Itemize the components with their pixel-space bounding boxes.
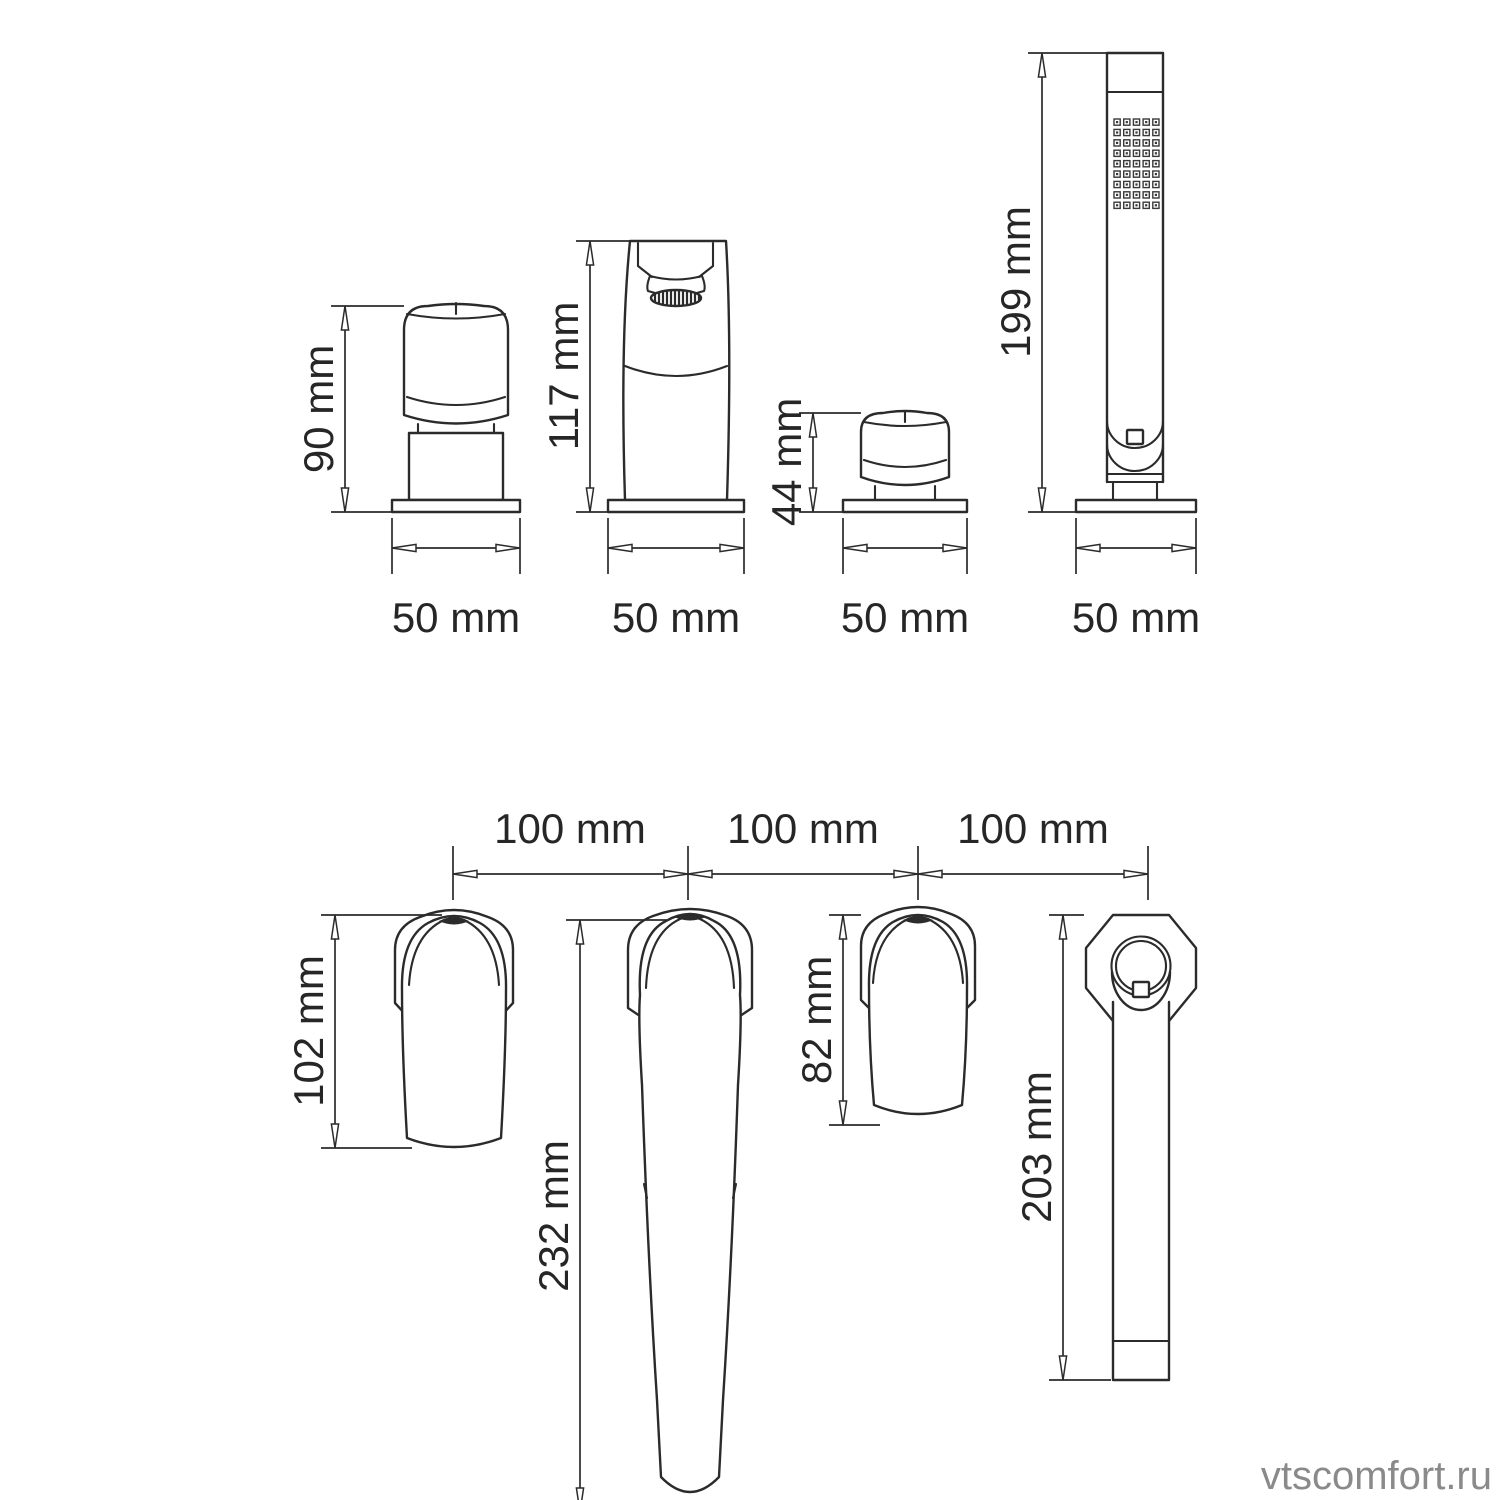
height-dim-left-handle: 90 mm	[295, 306, 404, 512]
nozzle-dot-core	[1126, 131, 1128, 133]
length-label: 232 mm	[530, 1140, 577, 1292]
nozzle-dot-core	[1145, 131, 1147, 133]
extension-lines	[392, 518, 520, 574]
nozzle-dot-core	[1126, 194, 1128, 196]
width-dim-left-handle: 50 mm	[392, 518, 520, 641]
nozzle-dot-core	[1116, 194, 1118, 196]
height-dim-hand-shower: 199 mm	[992, 53, 1107, 512]
nozzle-dot-core	[1155, 163, 1157, 165]
faucet-dimension-diagram: 90 mm 117 mm 44 mm 199 mm 50 mm 50 mm	[0, 0, 1500, 1500]
top-view-left-handle	[395, 910, 513, 1147]
nozzle-dot-core	[1135, 121, 1137, 123]
height-label: 44 mm	[763, 398, 810, 526]
height-label: 117 mm	[540, 302, 587, 451]
front-view-right-handle	[843, 411, 967, 512]
nozzle-dot-core	[1145, 152, 1147, 154]
extension-lines	[608, 518, 744, 574]
spout-outline	[639, 914, 740, 1492]
handle-lever-outline	[402, 916, 506, 1147]
nozzle-dot-core	[1116, 183, 1118, 185]
extension-lines	[1028, 53, 1107, 512]
nozzle-dot-core	[1116, 152, 1118, 154]
length-label: 102 mm	[285, 955, 332, 1107]
nozzle-dot-core	[1116, 121, 1118, 123]
nozzle-dot-core	[1145, 194, 1147, 196]
width-dim-hand-shower: 50 mm	[1072, 518, 1200, 641]
nozzle-dot-core	[1155, 142, 1157, 144]
nozzle-dot-core	[1126, 152, 1128, 154]
length-label: 203 mm	[1013, 1071, 1060, 1223]
top-view-spout	[628, 909, 752, 1492]
nozzle-dot-core	[1126, 142, 1128, 144]
nozzle-dot-core	[1145, 121, 1147, 123]
nozzle-dot-core	[1116, 142, 1118, 144]
spacing-dim-chain: 100 mm 100 mm 100 mm	[453, 805, 1148, 900]
spacing-label-2: 100 mm	[727, 805, 879, 852]
watermark: vtscomfort.ru	[1261, 1454, 1492, 1498]
shower-body-outline	[1107, 53, 1163, 482]
front-view-hand-shower	[1076, 53, 1196, 512]
handle-lever-outline	[869, 915, 967, 1114]
shower-button	[1127, 430, 1143, 444]
width-label: 50 mm	[612, 594, 740, 641]
nozzle-dot-core	[1135, 173, 1137, 175]
nozzle-dot-core	[1155, 204, 1157, 206]
height-label: 199 mm	[992, 206, 1039, 358]
nozzle-dot-core	[1155, 183, 1157, 185]
nozzle-dot-core	[1135, 183, 1137, 185]
height-label: 90 mm	[295, 345, 342, 473]
nozzle-dot-core	[1145, 163, 1147, 165]
nozzle-dot-core	[1145, 173, 1147, 175]
height-dim-spout: 117 mm	[540, 241, 630, 512]
shower-shaft	[1113, 1002, 1169, 1380]
nozzle-dot-core	[1145, 183, 1147, 185]
extension-lines	[843, 518, 967, 574]
width-dim-right-handle: 50 mm	[841, 518, 969, 641]
front-view-left-handle	[392, 303, 520, 512]
shower-base-plate	[1076, 500, 1196, 512]
nozzle-dot-core	[1135, 152, 1137, 154]
nozzle-dot-core	[1145, 204, 1147, 206]
extension-lines	[1076, 518, 1196, 574]
nozzle-dot-core	[1116, 173, 1118, 175]
nozzle-dot-core	[1126, 183, 1128, 185]
shower-button-top	[1133, 982, 1149, 997]
width-dim-spout: 50 mm	[608, 518, 744, 641]
nozzle-dot-core	[1126, 173, 1128, 175]
handle-base-plate	[843, 500, 967, 512]
handle-body	[409, 433, 503, 500]
handle-base-plate	[392, 500, 520, 512]
nozzle-dot-core	[1126, 121, 1128, 123]
width-label: 50 mm	[1072, 594, 1200, 641]
tick-lines	[453, 846, 1148, 900]
handle-neck-lines	[875, 486, 935, 500]
nozzle-dot-core	[1135, 194, 1137, 196]
width-label: 50 mm	[841, 594, 969, 641]
nozzle-dot-core	[1116, 163, 1118, 165]
nozzle-dot-core	[1116, 204, 1118, 206]
spacing-label-3: 100 mm	[957, 805, 1109, 852]
nozzle-dot-core	[1155, 194, 1157, 196]
nozzle-grid	[1114, 119, 1159, 208]
nozzle-dot-core	[1126, 204, 1128, 206]
front-view-row: 90 mm 117 mm 44 mm 199 mm 50 mm 50 mm	[295, 53, 1200, 641]
top-view-hand-shower	[1086, 915, 1196, 1380]
width-label: 50 mm	[392, 594, 520, 641]
nozzle-dot-core	[1116, 131, 1118, 133]
shower-stem-lines	[1113, 482, 1157, 500]
nozzle-dot-core	[1145, 142, 1147, 144]
technical-drawing-page: 90 mm 117 mm 44 mm 199 mm 50 mm 50 mm	[0, 0, 1500, 1500]
nozzle-dot-core	[1155, 152, 1157, 154]
spacing-label-1: 100 mm	[494, 805, 646, 852]
nozzle-dot-core	[1135, 204, 1137, 206]
top-view-right-handle	[861, 907, 975, 1114]
length-label: 82 mm	[793, 956, 840, 1084]
nozzle-dot-core	[1126, 163, 1128, 165]
nozzle-dot-core	[1135, 163, 1137, 165]
nozzle-dot-core	[1155, 173, 1157, 175]
top-view-row: 100 mm 100 mm 100 mm	[285, 805, 1196, 1500]
front-view-spout	[608, 241, 744, 512]
nozzle-dot-core	[1135, 131, 1137, 133]
nozzle-dot-core	[1135, 142, 1137, 144]
handle-neck-lines	[418, 424, 494, 433]
nozzle-dot-core	[1155, 131, 1157, 133]
spout-base-plate	[608, 500, 744, 512]
nozzle-dot-core	[1155, 121, 1157, 123]
